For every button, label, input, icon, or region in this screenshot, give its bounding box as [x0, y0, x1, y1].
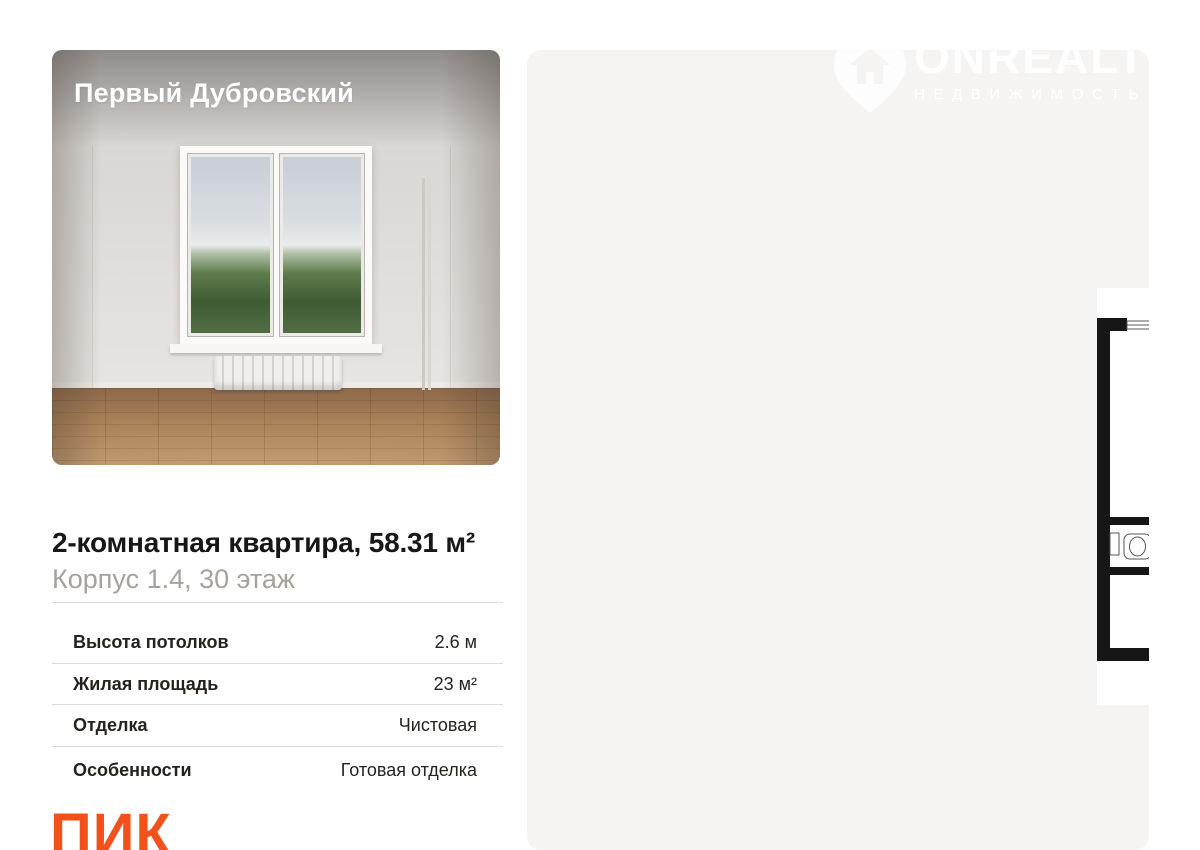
- watermark-tagline: НЕДВИЖИМОСТЬ: [914, 86, 1147, 103]
- apartment-photo: Первый Дубровский: [52, 50, 500, 465]
- onrealt-watermark: ONREALT НЕДВИЖИМОСТЬ: [833, 50, 1147, 114]
- spec-label: Высота потолков: [52, 632, 229, 653]
- spec-value: 23 м²: [434, 674, 503, 695]
- spec-row-features: Особенности Готовая отделка: [52, 746, 503, 794]
- spec-label: Жилая площадь: [52, 674, 218, 695]
- wc-radiator: [1110, 533, 1119, 555]
- watermark-brand: ONREALT: [914, 50, 1147, 88]
- spec-value: Готовая отделка: [341, 760, 503, 781]
- spec-label: Особенности: [52, 760, 192, 781]
- listing-page: Первый Дубровский 2-комнатная квартира, …: [0, 0, 1200, 850]
- spec-row-living-area: Жилая площадь 23 м²: [52, 663, 503, 704]
- fixtures: [1110, 523, 1149, 645]
- specs-table: Высота потолков 2.6 м Жилая площадь 23 м…: [52, 602, 503, 794]
- map-pin-house-icon: [833, 50, 907, 114]
- walls: [1097, 318, 1149, 661]
- project-name-label: Первый Дубровский: [74, 78, 354, 109]
- floorplan: 11.1 20.91 11.9 1.3 5.8 3.5 3.8: [1097, 288, 1149, 705]
- floorplan-panel: ONREALT НЕДВИЖИМОСТЬ: [527, 50, 1149, 850]
- floorplan-svg: 11.1 20.91 11.9 1.3 5.8 3.5 3.8: [1097, 288, 1149, 705]
- page-subtitle: Корпус 1.4, 30 этаж: [52, 564, 512, 595]
- window-sills: [1127, 321, 1149, 329]
- page-title: 2-комнатная квартира, 58.31 м²: [52, 527, 512, 559]
- spec-label: Отделка: [52, 715, 147, 736]
- pik-developer-logo: ПИК: [50, 806, 172, 850]
- photo-vignette: [52, 50, 500, 465]
- spec-value: 2.6 м: [435, 632, 503, 653]
- spec-row-ceiling-height: Высота потолков 2.6 м: [52, 602, 503, 663]
- spec-value: Чистовая: [399, 715, 503, 736]
- watermark-text: ONREALT НЕДВИЖИМОСТЬ: [914, 50, 1147, 103]
- spec-row-finishing: Отделка Чистовая: [52, 704, 503, 746]
